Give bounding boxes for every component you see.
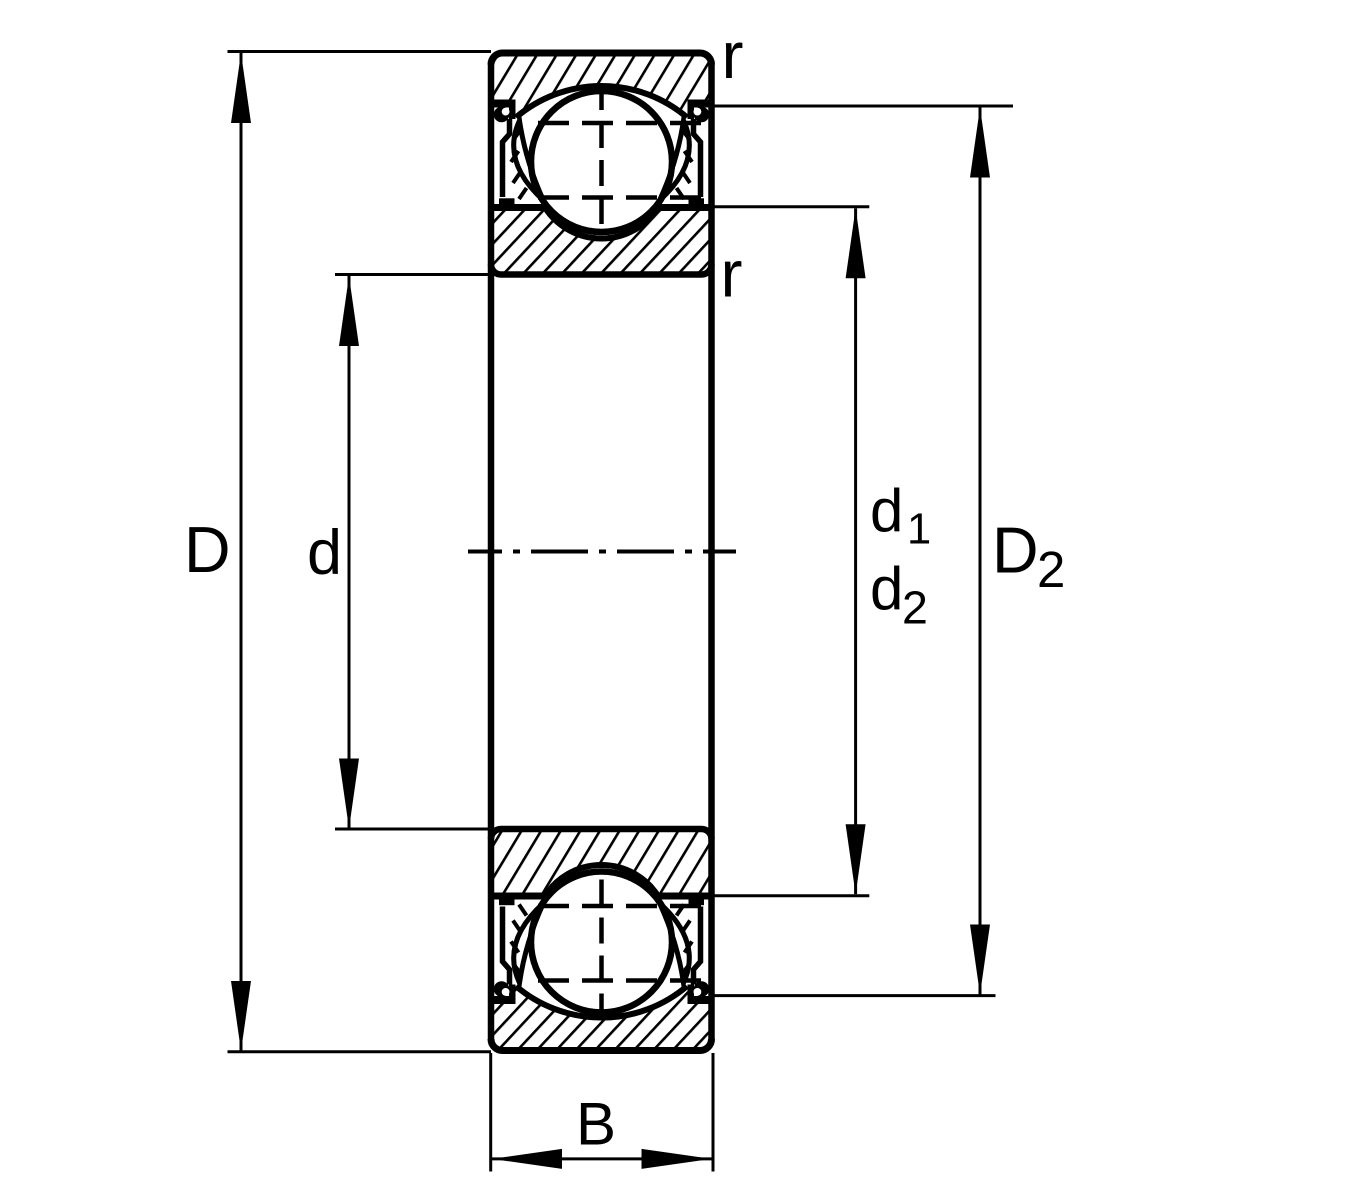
- svg-text:2: 2: [902, 581, 928, 633]
- svg-text:d: d: [870, 555, 903, 622]
- svg-text:d: d: [870, 477, 903, 544]
- svg-text:2: 2: [1037, 541, 1065, 598]
- svg-text:d: d: [307, 518, 342, 588]
- svg-text:D: D: [184, 514, 231, 586]
- svg-text:B: B: [576, 1091, 616, 1158]
- svg-text:r: r: [721, 236, 743, 310]
- svg-text:r: r: [722, 18, 744, 92]
- svg-text:1: 1: [907, 505, 931, 553]
- svg-text:D: D: [992, 514, 1039, 586]
